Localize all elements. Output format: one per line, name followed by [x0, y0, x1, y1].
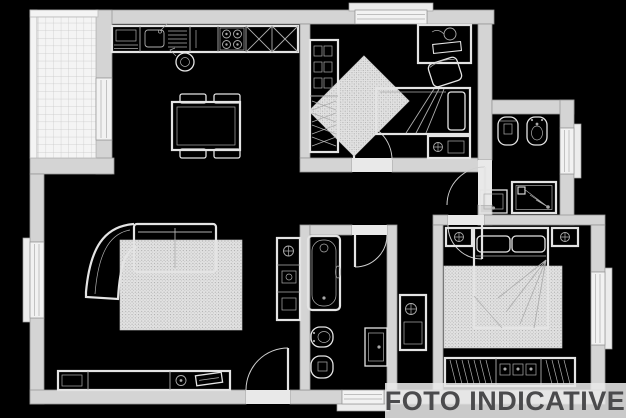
toilet-main: [311, 356, 333, 378]
balcony-door: [96, 78, 112, 140]
watermark-text: FOTO INDICATIVE: [385, 386, 626, 416]
appliance-cabinet: [277, 238, 300, 320]
window-top: [355, 10, 427, 24]
main-bathroom: [308, 236, 387, 378]
balcony-railing-top: [30, 10, 98, 17]
window-master-sill: [605, 268, 612, 349]
master-bedroom: [444, 228, 578, 386]
watermark: FOTO INDICATIVE: [385, 383, 626, 418]
living-rug: [120, 240, 242, 330]
shower-tray: [512, 182, 556, 213]
hallway: [400, 295, 426, 350]
small-bedroom-study: [309, 25, 471, 158]
bathtub: [308, 236, 341, 310]
window-left-sill: [23, 238, 30, 322]
cooktop-4-burners: [220, 28, 244, 50]
desk-chair: [427, 56, 463, 88]
bedside-cabinet: [428, 136, 470, 158]
window-left: [30, 242, 44, 318]
window-ensuite-sill: [574, 124, 581, 178]
main-bathroom-door: [352, 225, 387, 267]
window-main-bathroom-sill: [337, 404, 389, 411]
bidet: [527, 117, 547, 145]
toilet: [498, 117, 518, 145]
window-master: [591, 272, 605, 345]
master-rug: [444, 266, 562, 348]
bidet-main: [311, 327, 333, 347]
kitchen-counter: [112, 23, 298, 71]
floor-plan-svg: FOTO INDICATIVE: [0, 0, 626, 418]
balcony-railing-left: [30, 10, 37, 158]
tv-sideboard: [58, 371, 230, 390]
desk-with-chair: [418, 25, 471, 88]
balcony-terrace: [30, 10, 98, 158]
nightstand-right: [552, 228, 578, 246]
window-ensuite: [560, 128, 574, 174]
window-main-bathroom: [342, 390, 384, 404]
hall-cabinet: [400, 295, 426, 350]
balcony-tiles: [37, 17, 96, 158]
wardrobe-hanging-clothes: [445, 358, 575, 386]
dining-table-with-chairs: [172, 94, 240, 158]
floor-plan-image: FOTO INDICATIVE: [0, 0, 626, 418]
washbasin-main: [365, 328, 387, 366]
entrance-door: [246, 348, 290, 404]
